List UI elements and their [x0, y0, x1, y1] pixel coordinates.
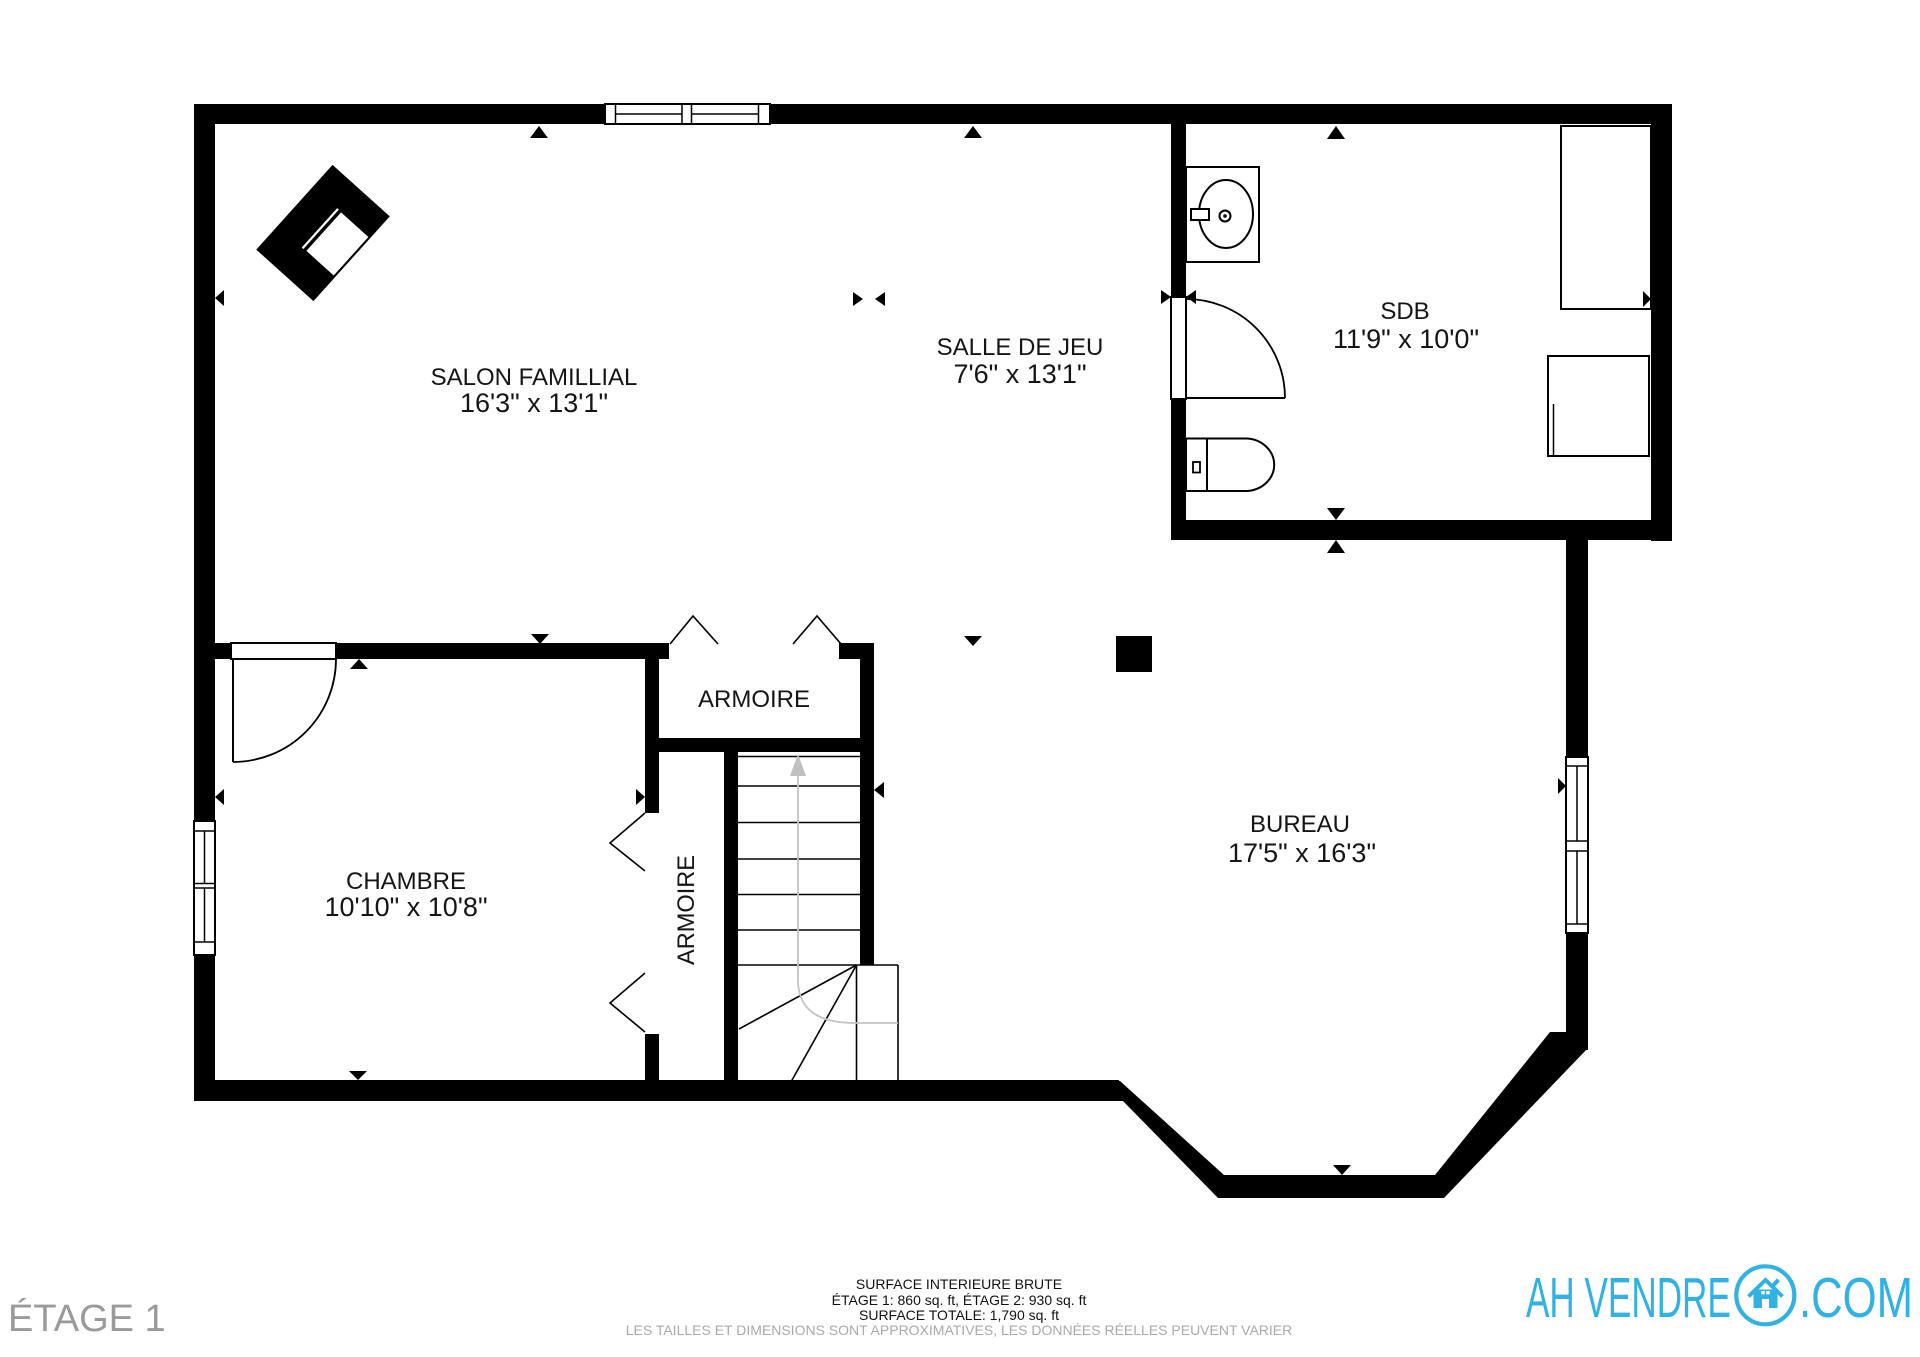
svg-text:ARMOIRE: ARMOIRE	[673, 855, 700, 965]
svg-text:BUREAU: BUREAU	[1250, 811, 1350, 838]
svg-text:ÉTAGE 1: ÉTAGE 1	[8, 1297, 166, 1340]
svg-text:16'3" x 13'1": 16'3" x 13'1"	[460, 388, 608, 418]
svg-text:17'5" x 16'3": 17'5" x 16'3"	[1228, 838, 1376, 868]
svg-text:CHAMBRE: CHAMBRE	[346, 868, 466, 895]
svg-text:ÉTAGE 1: 860 sq. ft, ÉTAGE 2:: ÉTAGE 1: 860 sq. ft, ÉTAGE 2: 930 sq. ft	[832, 1292, 1087, 1308]
svg-text:SDB: SDB	[1380, 298, 1429, 325]
svg-text:AH VENDRE: AH VENDRE	[1526, 1266, 1731, 1330]
svg-text:7'6" x 13'1": 7'6" x 13'1"	[953, 359, 1086, 389]
svg-text:SALON FAMILLIAL: SALON FAMILLIAL	[431, 364, 638, 391]
svg-text:11'9" x 10'0": 11'9" x 10'0"	[1333, 324, 1479, 354]
svg-text:SURFACE INTERIEURE BRUTE: SURFACE INTERIEURE BRUTE	[856, 1276, 1062, 1292]
svg-text:SALLE DE JEU: SALLE DE JEU	[937, 334, 1104, 361]
svg-text:10'10" x 10'8": 10'10" x 10'8"	[324, 892, 487, 922]
svg-text:SURFACE TOTALE: 1,790 sq. ft: SURFACE TOTALE: 1,790 sq. ft	[859, 1307, 1059, 1323]
svg-text:ARMOIRE: ARMOIRE	[698, 686, 810, 713]
svg-text:LES TAILLES ET DIMENSIONS SONT: LES TAILLES ET DIMENSIONS SONT APPROXIMA…	[626, 1322, 1293, 1338]
svg-text:.COM: .COM	[1799, 1265, 1913, 1329]
